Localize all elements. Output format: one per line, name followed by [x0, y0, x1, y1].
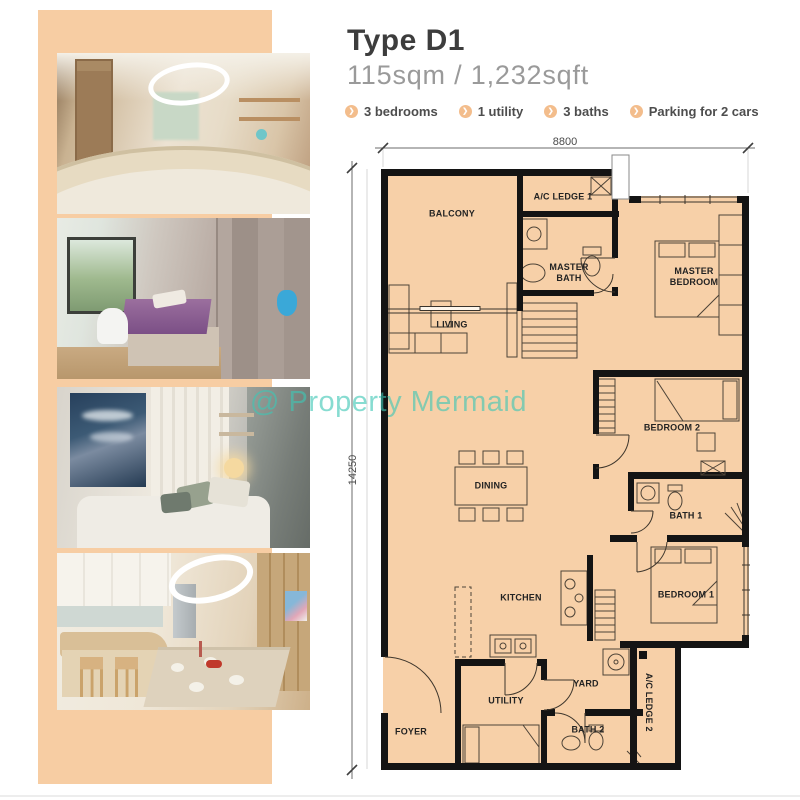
- room-label-yard: YARD: [573, 679, 598, 690]
- mirror-splashback: [57, 606, 163, 626]
- room-label-foyer: FOYER: [395, 727, 427, 738]
- chevron-bullet-icon: ❯: [544, 105, 557, 118]
- page-title: Type D1: [347, 24, 465, 58]
- art-cloud: [82, 410, 133, 421]
- white-chair: [97, 308, 127, 343]
- feature-utility: ❯1 utility: [459, 104, 524, 119]
- room-label-bath-2: BATH 2: [571, 725, 604, 736]
- room-label-bedroom-1: BEDROOM 1: [658, 590, 714, 601]
- shelf-1: [239, 98, 300, 102]
- floor-plan-drawing: 8800 14250: [345, 135, 785, 795]
- room-label-dining: DINING: [475, 481, 508, 492]
- shelf-2: [239, 117, 300, 121]
- pillow-dark: [160, 492, 192, 514]
- plate-1: [171, 663, 184, 672]
- centerpiece: [206, 660, 222, 668]
- watermark-text: @ Property Mermaid: [250, 386, 527, 419]
- dimension-width-label: 8800: [553, 136, 577, 148]
- wall-art: [285, 591, 308, 621]
- room-label-utility: UTILITY: [488, 696, 523, 707]
- photo-study-bedroom: [57, 218, 310, 379]
- unit-area: 115sqm / 1,232sqft: [347, 60, 589, 91]
- bottom-hairline: [0, 795, 800, 797]
- candle: [199, 641, 202, 657]
- service-duct-notch: [612, 155, 629, 199]
- bar-stool-1: [80, 657, 103, 698]
- feature-label: 3 bedrooms: [364, 104, 438, 119]
- room-label-balcony: BALCONY: [429, 209, 475, 220]
- bar-stool-2: [115, 657, 138, 698]
- flyer-page: Type D1 115sqm / 1,232sqft ❯3 bedrooms ❯…: [0, 0, 800, 800]
- dimension-height-label: 14250: [347, 455, 359, 486]
- feature-label: Parking for 2 cars: [649, 104, 759, 119]
- photo-kitchen-island: [57, 53, 310, 214]
- room-label-ac-ledge-2: A/C LEDGE 2: [643, 673, 654, 732]
- room-label-bedroom-2: BEDROOM 2: [644, 423, 700, 434]
- wall-shelf-2: [219, 432, 254, 436]
- feature-baths: ❯3 baths: [544, 104, 609, 119]
- room-label-living: LIVING: [436, 320, 467, 331]
- chevron-bullet-icon: ❯: [459, 105, 472, 118]
- photo-dining-kitchen: [57, 553, 310, 710]
- chevron-bullet-icon: ❯: [345, 105, 358, 118]
- feature-label: 1 utility: [478, 104, 524, 119]
- plate-3: [189, 682, 204, 692]
- art-cloud-2: [90, 432, 133, 442]
- chevron-bullet-icon: ❯: [630, 105, 643, 118]
- feature-label: 3 baths: [563, 104, 609, 119]
- teal-plate: [256, 129, 267, 140]
- feature-list: ❯3 bedrooms ❯1 utility ❯3 baths ❯Parking…: [345, 104, 759, 119]
- dining-table: [143, 647, 289, 707]
- room-label-bath-1: BATH 1: [669, 511, 702, 522]
- room-label-kitchen: KITCHEN: [500, 593, 541, 604]
- room-label-ac-ledge-1: A/C LEDGE 1: [534, 192, 593, 203]
- feature-parking: ❯Parking for 2 cars: [630, 104, 759, 119]
- room-label-master-bedroom: MASTER BEDROOM: [658, 266, 730, 288]
- pillow-white: [207, 476, 251, 507]
- white-cabinets: [57, 553, 171, 606]
- lamp-glow: [224, 458, 244, 478]
- floor-plan: 8800 14250 BALCONY A/C LEDGE 1 MASTER BA…: [345, 135, 785, 795]
- feature-bedrooms: ❯3 bedrooms: [345, 104, 438, 119]
- room-label-master-bath: MASTER BATH: [543, 262, 595, 284]
